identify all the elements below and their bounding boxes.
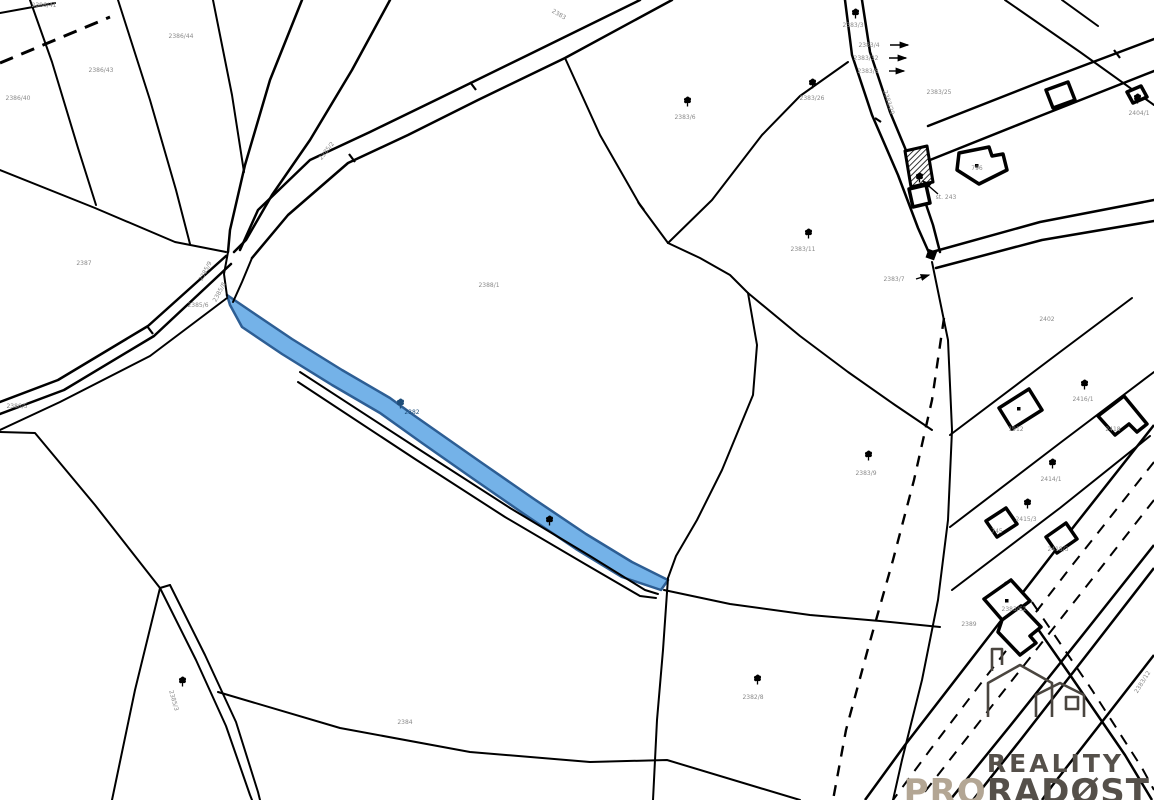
parcel-label: 796 — [971, 165, 983, 172]
parcel-label: 2402 — [1039, 316, 1054, 323]
parcel-label: 2415/3 — [1015, 516, 1036, 523]
tree-icon — [1024, 498, 1031, 508]
parcel-label: 2385/2 — [318, 140, 337, 161]
leader-arrow — [916, 275, 929, 279]
parcel-label: 2386/5 — [6, 403, 27, 410]
parcel-label: 2416/1 — [1072, 396, 1093, 403]
parcel-label: 2382 — [404, 409, 419, 416]
parcel-label: 2383/8 — [857, 68, 878, 75]
highlighted-parcel[interactable] — [227, 295, 668, 590]
tree-icon — [754, 674, 761, 684]
parcel-label: 1912 — [1008, 426, 1023, 433]
tree-icon — [684, 96, 691, 106]
cadastral-map: 2386/402386/432386/442386/4123872386/523… — [0, 0, 1154, 800]
highlighted-parcel-shape[interactable] — [227, 295, 668, 590]
parcel-label: 2382/8 — [742, 694, 763, 701]
parcel-label: 2389 — [961, 621, 976, 628]
logo-line2-accent: PRO — [904, 772, 987, 800]
parcel-label: 2383/32 — [854, 55, 879, 62]
parcel-label: 2383/7 — [883, 276, 904, 283]
logo-line2-rest: RADØST — [987, 772, 1150, 800]
logo-line2: PRORADØST — [904, 776, 1150, 800]
parcel-label: 2383/20 — [881, 90, 895, 116]
parcel-label: 2388/1 — [478, 282, 499, 289]
tree-icon — [809, 78, 816, 88]
parcel-label: 2385/9 — [198, 260, 214, 282]
parcel-labels: 2386/402386/432386/442386/4123872386/523… — [6, 2, 1153, 726]
parcel-label: 2386/41 — [32, 2, 57, 9]
building-footprints — [909, 82, 1147, 655]
parcel-label: 2414/1 — [1040, 476, 1061, 483]
parcel-label: st. 243 — [936, 194, 957, 201]
tree-icon — [1081, 379, 1088, 389]
parcel-label: 2383/25 — [927, 89, 952, 96]
building-dot — [1017, 407, 1021, 411]
building-dot — [1005, 599, 1009, 603]
parcel-label: 2386/44 — [169, 33, 194, 40]
parcel-label: 2385/6 — [187, 302, 208, 309]
parcel-label: 2383/4 — [858, 42, 879, 49]
parcel-label: 2383/26 — [800, 95, 825, 102]
parcel-label: 2386/40 — [6, 95, 31, 102]
parcel-label: 2418 — [1105, 426, 1120, 433]
parcel-label: 2384 — [397, 719, 412, 726]
parcel-label: 2383/9 — [855, 470, 876, 477]
parcel-label: 2383 — [550, 8, 567, 22]
tree-icon — [179, 676, 186, 686]
tree-icon — [1049, 458, 1056, 468]
parcel-label: 745 — [991, 528, 1003, 535]
parcel-label: 2386/43 — [89, 67, 114, 74]
parcel-label: 2383/11 — [791, 246, 816, 253]
agency-logo: REALITY PRORADØST — [904, 752, 1150, 800]
logo-house-icon — [976, 637, 1096, 732]
tree-icon — [865, 450, 872, 460]
parcel-label: 2387 — [76, 260, 91, 267]
parcel-label: 2383/12 — [1133, 670, 1152, 695]
parcel-label: 2404/1 — [1128, 110, 1149, 117]
parcel-label: 2418/3 — [1047, 546, 1068, 553]
tree-icon — [805, 228, 812, 238]
dashed-boundary — [0, 17, 944, 800]
parcel-label: 2383/3 — [842, 22, 863, 29]
parcel-label: 2385/3 — [167, 689, 180, 711]
tree-icon — [852, 8, 859, 18]
parcel-label: 2383/62 — [1002, 606, 1027, 613]
parcel-label: 2383/6 — [674, 114, 695, 121]
